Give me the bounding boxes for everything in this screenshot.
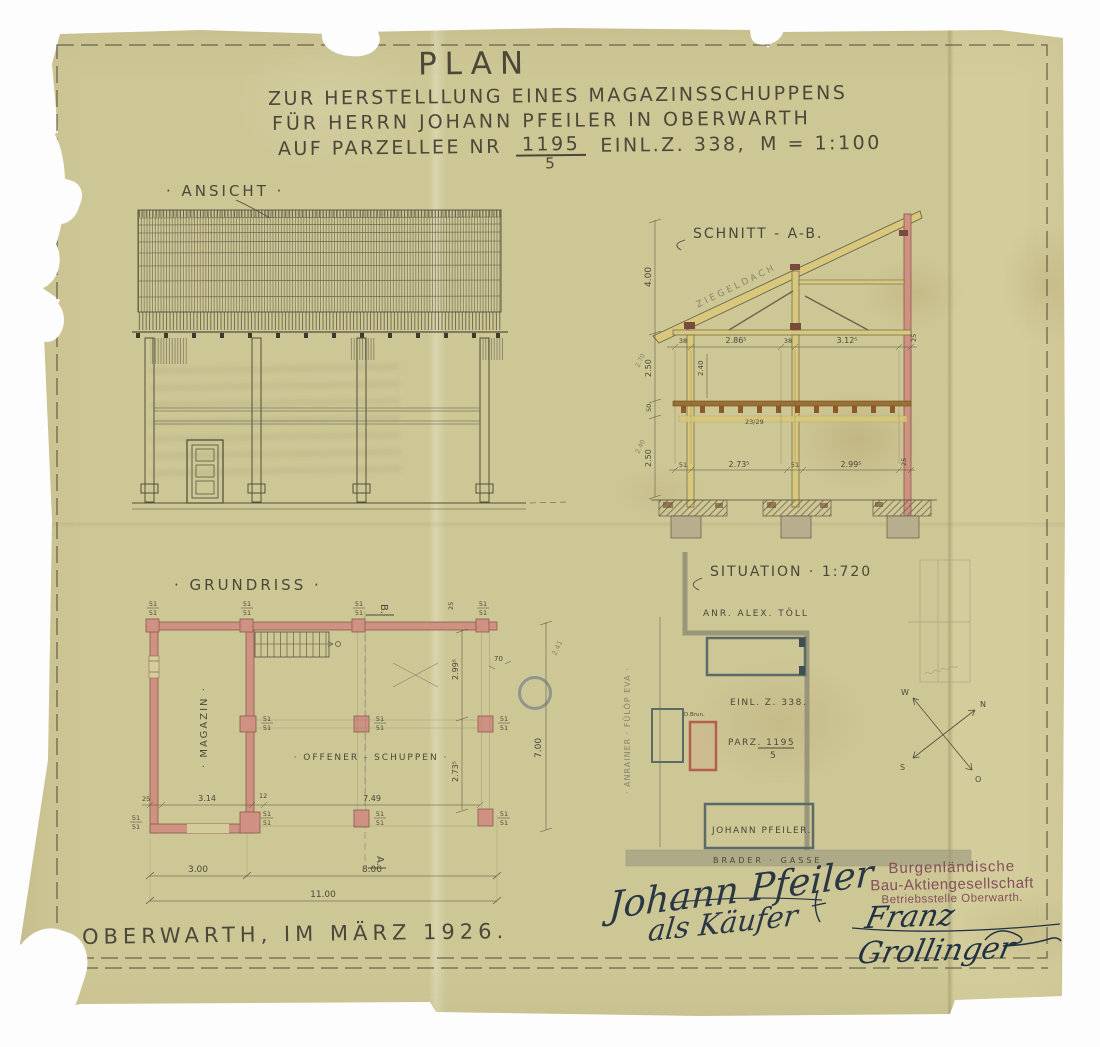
dim-25: 25 bbox=[910, 334, 918, 342]
king-post bbox=[792, 271, 799, 330]
parcel-denominator: 5 bbox=[545, 156, 557, 170]
post-label: 5151 bbox=[241, 600, 253, 617]
svg-text:51: 51 bbox=[243, 600, 251, 608]
svg-text:51: 51 bbox=[500, 715, 508, 723]
dim-3125: 3.12⁵ bbox=[836, 336, 857, 345]
post-label: 5151 bbox=[374, 715, 386, 732]
dim-700: 7.00 bbox=[534, 738, 544, 758]
svg-text:51: 51 bbox=[479, 600, 487, 608]
room-label-schuppen: · OFFENER - SCHUPPEN · bbox=[294, 753, 449, 763]
compass-o: O bbox=[975, 775, 981, 784]
dim-2735: 2.73⁵ bbox=[728, 460, 749, 469]
svg-text:51: 51 bbox=[376, 724, 384, 732]
dim-38: 38 bbox=[679, 337, 687, 345]
dim-50: 50 bbox=[645, 404, 653, 412]
parcel-label: PARZ. 1195 bbox=[728, 738, 795, 748]
grundriss-label: · GRUNDRISS · bbox=[174, 576, 322, 594]
compass-w: W bbox=[901, 688, 909, 697]
post-label: 5151 bbox=[147, 600, 159, 617]
svg-text:51: 51 bbox=[243, 609, 251, 617]
foundations bbox=[651, 500, 937, 538]
building-corner-mark bbox=[799, 666, 805, 675]
dim-51: 51 bbox=[679, 461, 687, 469]
ansicht-drawing: · ANSICHT · bbox=[118, 180, 590, 528]
svg-text:51: 51 bbox=[132, 823, 140, 831]
post-label: 5151 bbox=[261, 810, 273, 827]
existing-building-west bbox=[652, 709, 683, 762]
dim-25: 25 bbox=[447, 602, 455, 610]
label-flourish bbox=[693, 578, 702, 590]
post-label: 5151 bbox=[353, 600, 365, 617]
tie-beam bbox=[673, 330, 911, 335]
door-opening bbox=[187, 824, 229, 833]
hanging-thatch bbox=[150, 338, 188, 364]
schnitt-drawing: SCHNITT - A-B. ZIEGELDACH bbox=[615, 192, 1037, 554]
thatched-roof bbox=[138, 210, 501, 330]
collar-beam bbox=[799, 280, 904, 284]
scanned-plan-page: PLAN ZUR HERSTELLLUNG EINES MAGAZINSSCHU… bbox=[0, 0, 1100, 1047]
schnitt-label: SCHNITT - A-B. bbox=[693, 226, 823, 242]
timber-posts bbox=[141, 338, 493, 502]
paper-tear bbox=[30, 298, 64, 342]
compass-n: N bbox=[980, 700, 986, 709]
dim-2735: 2.73⁵ bbox=[451, 761, 460, 782]
einlagezahl-label: EINL. Z. 338. bbox=[730, 698, 807, 708]
dim-70: 70 bbox=[494, 655, 503, 663]
dim-250: 2.50 bbox=[644, 449, 653, 467]
svg-text:51: 51 bbox=[355, 609, 363, 617]
svg-text:51: 51 bbox=[500, 810, 508, 818]
post-label: 5151 bbox=[477, 600, 489, 617]
post-label: 5151 bbox=[261, 715, 273, 732]
parcel-number-fraction: 1195 5 bbox=[516, 135, 587, 171]
svg-text:51: 51 bbox=[149, 609, 157, 617]
dimension-labels: 38 2.86⁵ 38 3.12⁵ 25 2.40 51 2.73⁵ 51 2.… bbox=[634, 267, 918, 469]
situation-label: SITUATION · 1:720 bbox=[710, 564, 872, 580]
hanging-thatch bbox=[350, 338, 376, 360]
dim-1100: 11.00 bbox=[310, 890, 336, 900]
wall-rails bbox=[154, 408, 480, 424]
dim-25: 25 bbox=[142, 795, 150, 803]
neighbor-north-label: ANR. ALEX. TÖLL bbox=[703, 608, 809, 619]
post-label: 5151 bbox=[498, 810, 510, 827]
situation-drawing: SITUATION · 1:720 ANR. ALEX. TÖLL · ANRA… bbox=[598, 542, 1080, 892]
dim-51: 51 bbox=[791, 461, 799, 469]
scale-note: M = 1:100 bbox=[760, 132, 882, 155]
stair-symbol bbox=[255, 632, 341, 657]
dim-314: 3.14 bbox=[198, 794, 216, 803]
svg-text:51: 51 bbox=[376, 819, 384, 827]
dim-2865: 2.86⁵ bbox=[725, 336, 746, 345]
dim-400: 4.00 bbox=[644, 267, 654, 287]
pencil-cross bbox=[393, 663, 438, 687]
post-label: 5151 bbox=[130, 814, 142, 831]
svg-text:51: 51 bbox=[500, 819, 508, 827]
pencil-sketch-strip bbox=[908, 560, 970, 682]
dim-2995: 2.99⁵ bbox=[451, 659, 460, 680]
hanging-thatch bbox=[478, 338, 504, 360]
parcel-prefix: AUF PARZELLEE NR bbox=[278, 136, 502, 160]
joist-size-label: 23/29 bbox=[745, 418, 764, 426]
thatch-fringe bbox=[138, 312, 501, 330]
ansicht-label: · ANSICHT · bbox=[166, 182, 284, 200]
post-label: 5151 bbox=[498, 715, 510, 732]
svg-text:51: 51 bbox=[355, 600, 363, 608]
neighbor-west-label: · ANRAINER · FÜLÖP EVA · bbox=[622, 667, 632, 794]
dim-250: 2.50 bbox=[644, 359, 653, 377]
svg-text:51: 51 bbox=[263, 715, 271, 723]
grundriss-drawing: · GRUNDRISS · B. A. bbox=[128, 560, 604, 920]
svg-text:51: 51 bbox=[263, 724, 271, 732]
new-shed-outline bbox=[690, 722, 716, 770]
section-marker-b: B. bbox=[378, 604, 389, 614]
svg-text:51: 51 bbox=[263, 819, 271, 827]
dim-25: 25 bbox=[900, 458, 908, 466]
company-signature: Franz Grollinger bbox=[855, 893, 1100, 972]
dim-38: 38 bbox=[784, 337, 792, 345]
page-title: PLAN bbox=[418, 46, 531, 83]
post-label: 5151 bbox=[374, 810, 386, 827]
door bbox=[187, 440, 223, 503]
well-label: D.Brun. bbox=[684, 712, 705, 718]
window-symbol bbox=[149, 656, 159, 678]
parcel-denominator: 5 bbox=[770, 751, 776, 761]
compass-s: S bbox=[900, 763, 905, 772]
label-flourish bbox=[677, 240, 685, 250]
dim-800: 8.00 bbox=[362, 865, 382, 875]
dim-2995: 2.99⁵ bbox=[840, 460, 861, 469]
post-size-labels: 5151 5151 5151 5151 5151 5151 5151 5151 … bbox=[130, 600, 510, 831]
dim-240: 2.40 bbox=[697, 360, 705, 376]
building-corner-mark bbox=[799, 638, 805, 647]
svg-text:51: 51 bbox=[500, 724, 508, 732]
existing-building-north bbox=[707, 638, 805, 675]
right-post bbox=[904, 214, 911, 518]
roof-structure: ZIEGELDACH bbox=[653, 211, 922, 518]
dim-300: 3.00 bbox=[188, 865, 208, 875]
compass-rose: W N S O bbox=[900, 688, 986, 784]
svg-text:51: 51 bbox=[479, 609, 487, 617]
owner-label: JOHANN PFEILER. bbox=[711, 826, 812, 836]
dim-241: 2.41 bbox=[551, 639, 565, 657]
eave-beam bbox=[132, 332, 508, 364]
svg-text:51: 51 bbox=[376, 715, 384, 723]
dim-12: 12 bbox=[259, 792, 267, 800]
svg-text:51: 51 bbox=[149, 600, 157, 608]
einlagezahl: EINL.Z. 338, bbox=[600, 133, 746, 157]
room-label-magazin: · MAGAZIN · bbox=[199, 686, 210, 768]
title-line-4: AUF PARZELLEE NR 1195 5 EINL.Z. 338, M =… bbox=[278, 132, 882, 174]
dim-749: 7.49 bbox=[363, 794, 381, 803]
ground-line bbox=[132, 502, 566, 509]
svg-text:51: 51 bbox=[376, 810, 384, 818]
svg-text:51: 51 bbox=[132, 814, 140, 822]
svg-text:51: 51 bbox=[263, 810, 271, 818]
